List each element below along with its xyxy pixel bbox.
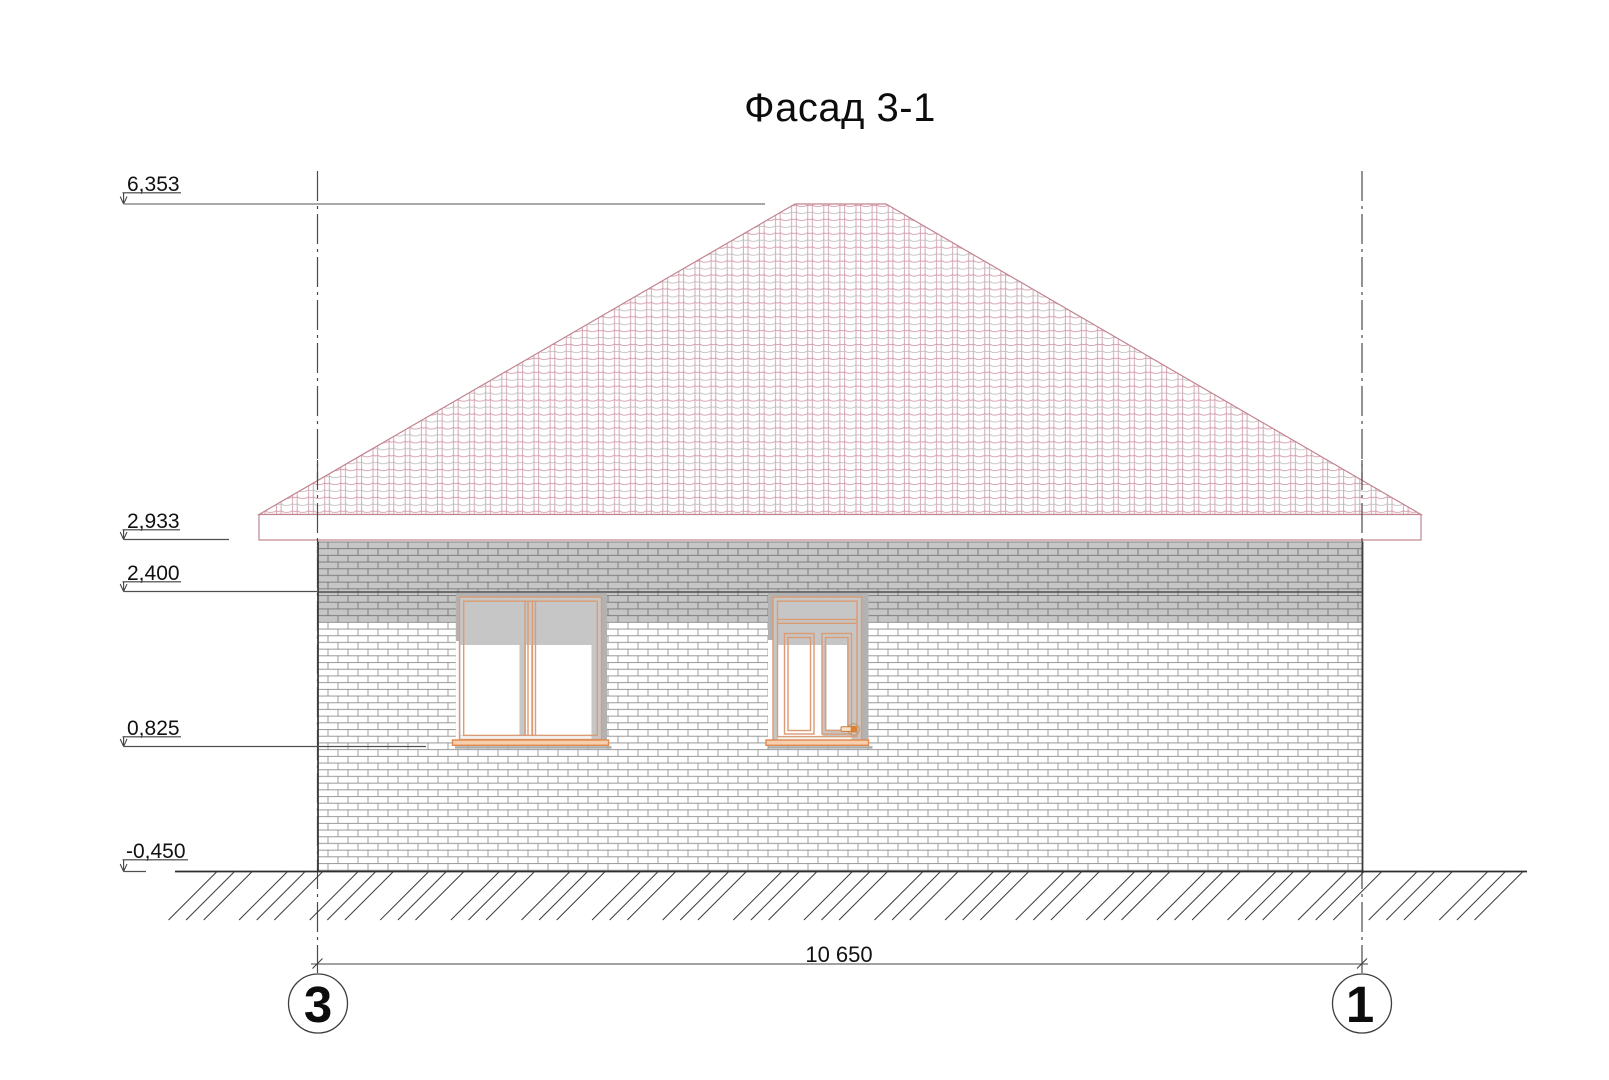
svg-text:1: 1: [1346, 976, 1374, 1033]
svg-text:10 650: 10 650: [805, 942, 872, 967]
svg-text:3: 3: [304, 976, 332, 1033]
svg-text:Фасад 3-1: Фасад 3-1: [744, 86, 936, 130]
